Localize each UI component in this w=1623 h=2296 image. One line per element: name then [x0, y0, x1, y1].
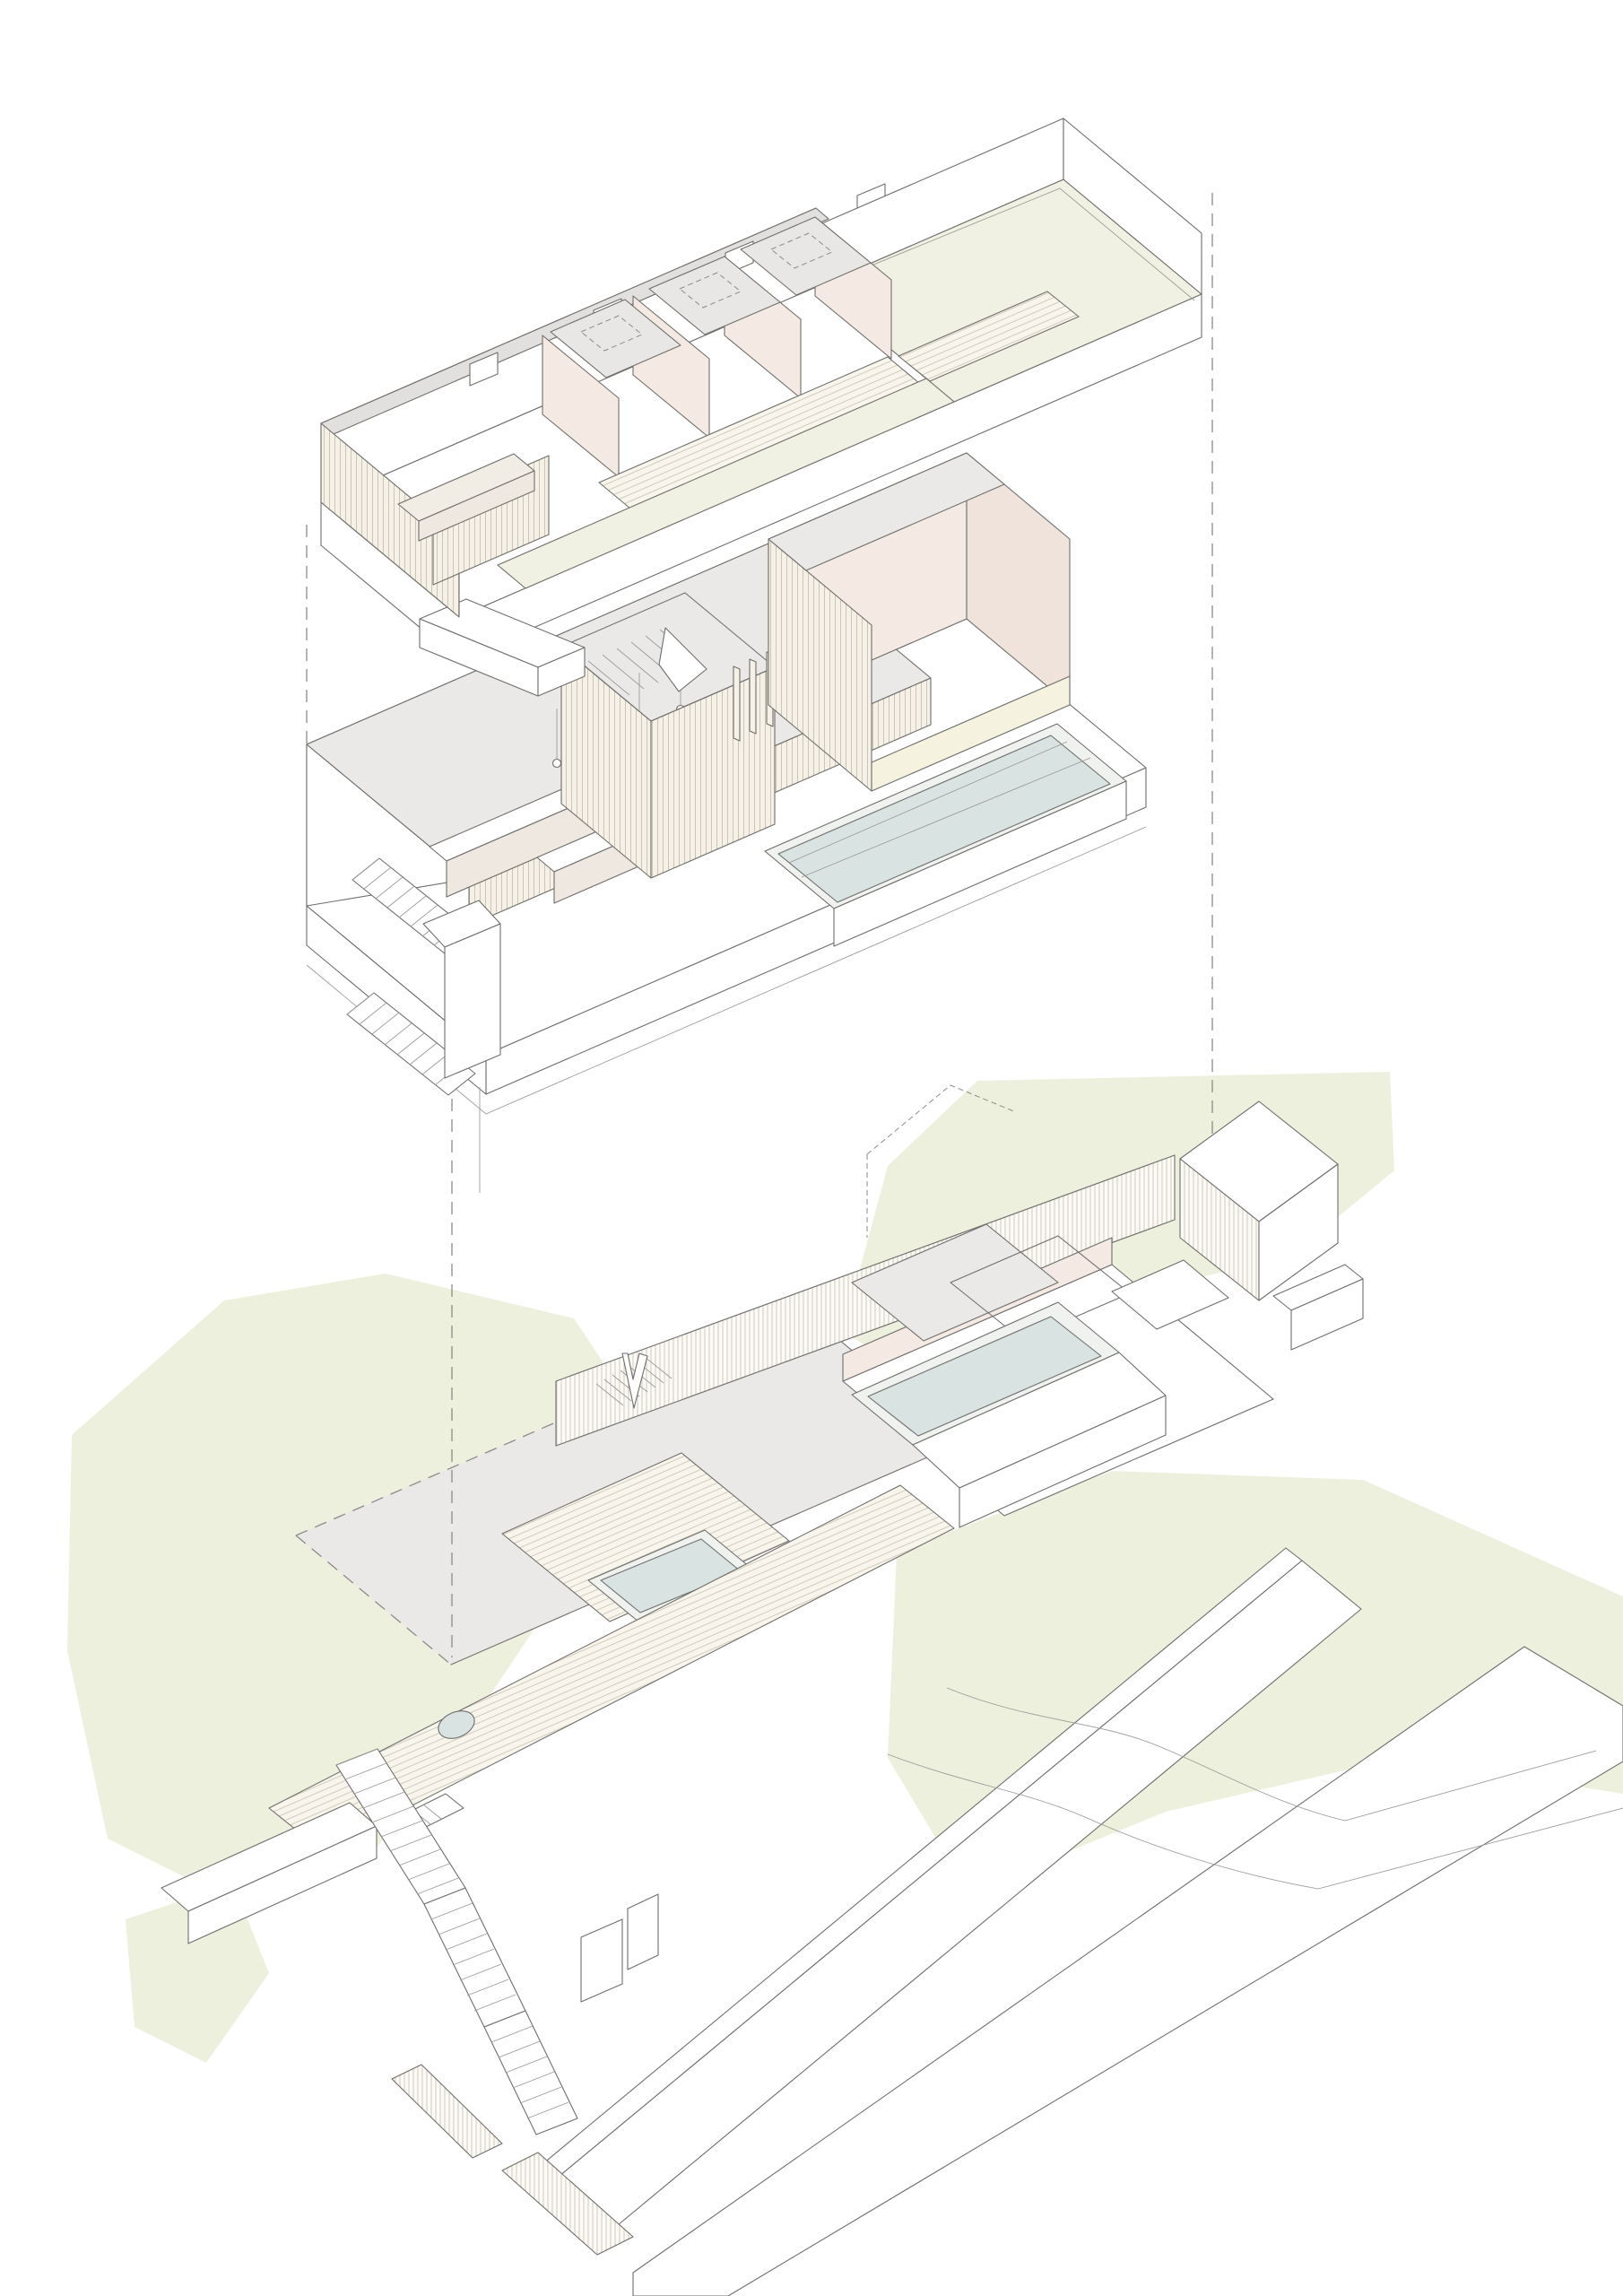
stair-pillar-face [445, 924, 500, 1078]
mid-wall-2 [628, 1894, 658, 1970]
mid-wall-1 [581, 1919, 622, 2002]
pendant-light [553, 760, 561, 768]
flight-3 [484, 2011, 577, 2135]
ramp-retaining-wall-1 [392, 2065, 502, 2158]
drawing-canvas [0, 0, 1623, 2296]
flight-2 [424, 1888, 525, 2027]
exploded-axonometric-drawing [0, 0, 1623, 2296]
